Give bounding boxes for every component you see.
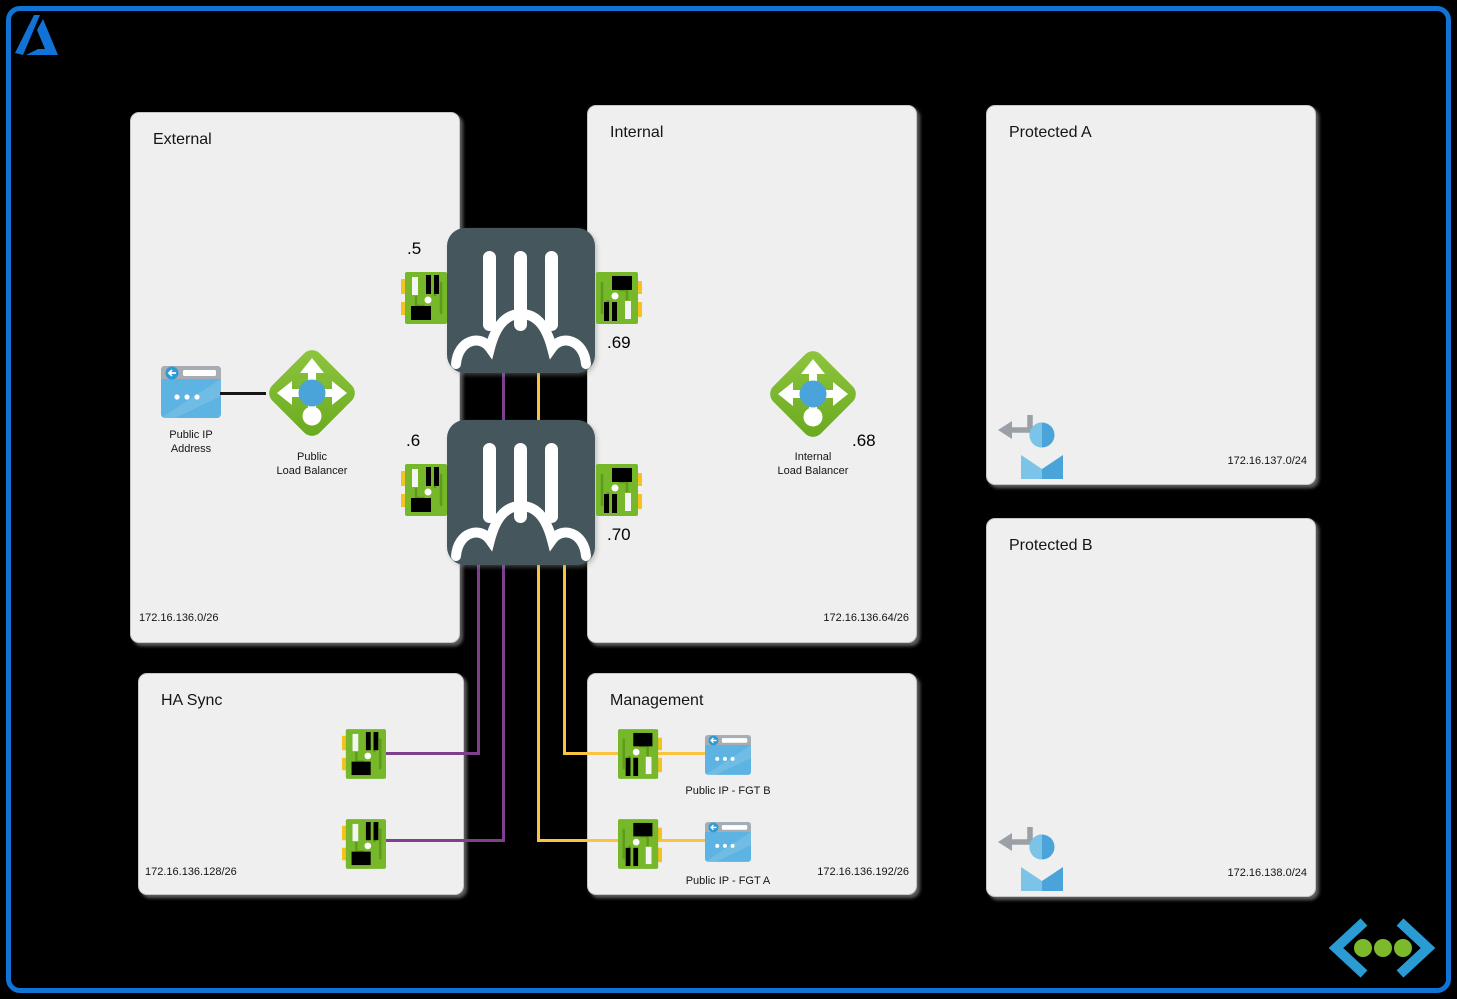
zone-protected-a-title: Protected A [1009, 124, 1092, 142]
zone-protected-b: Protected B 172.16.138.0/24 [986, 518, 1316, 897]
zone-protected-a-cidr: 172.16.137.0/24 [1227, 455, 1307, 467]
public-ip-caption-line1: Public IP [131, 428, 251, 442]
zone-internal-title: Internal [610, 124, 663, 142]
zone-internal-cidr: 172.16.136.64/26 [823, 612, 909, 624]
zone-internal: Internal 172.16.136.64/26 .68 Internal L… [587, 105, 917, 643]
fgt-a-external-port-label: .5 [407, 239, 421, 259]
fgt-b-internal-port-label: .70 [607, 525, 631, 545]
public-ip-address-icon [161, 366, 221, 418]
fgt-a-external-nic-icon [401, 270, 447, 326]
fortigate-b-firewall-icon [447, 420, 595, 565]
public-ip-fgt-a-caption: Public IP - FGT A [648, 874, 808, 888]
zone-management-cidr: 172.16.136.192/26 [817, 866, 909, 878]
zone-external-title: External [153, 131, 212, 149]
zone-external-cidr: 172.16.136.0/26 [139, 612, 219, 624]
fgt-b-external-nic-icon [401, 462, 447, 518]
ha-sync-nic-fgt-a-icon [342, 816, 386, 872]
mgmt-nic-fgt-b-icon [618, 726, 662, 782]
mgmt-line-fgt-b-vertical [563, 565, 566, 755]
fgt-a-internal-nic-icon [596, 270, 642, 326]
ha-sync-line-fgt-a-horizontal [386, 839, 505, 842]
subnet-user-icon [996, 823, 1064, 891]
azure-logo-icon [13, 14, 59, 58]
public-lb-caption-line1: Public [253, 450, 371, 464]
public-load-balancer-icon [263, 344, 361, 442]
code-chevrons-logo-icon [1326, 914, 1438, 982]
fgt-b-external-port-label: .6 [406, 431, 420, 451]
public-ip-fgt-a-icon [705, 822, 751, 862]
public-ip-fgt-b-caption: Public IP - FGT B [648, 784, 808, 798]
public-ip-fgt-b-icon [705, 735, 751, 775]
zone-protected-a: Protected A 172.16.137.0/24 [986, 105, 1316, 485]
zone-ha-sync-cidr: 172.16.136.128/26 [145, 866, 237, 878]
zone-ha-sync: HA Sync 172.16.136.128/26 [138, 673, 464, 895]
ha-sync-line-fgt-b-vertical [477, 565, 480, 755]
zone-protected-b-title: Protected B [1009, 537, 1093, 555]
pip-to-lb-connector [220, 392, 266, 395]
ha-sync-nic-fgt-b-icon [342, 726, 386, 782]
fgt-a-internal-port-label: .69 [607, 333, 631, 353]
zone-management-title: Management [610, 692, 703, 710]
public-ip-caption: Public IP Address [131, 428, 251, 456]
public-lb-caption-line2: Load Balancer [253, 464, 371, 478]
fgt-b-internal-nic-icon [596, 462, 642, 518]
zone-protected-b-cidr: 172.16.138.0/24 [1227, 867, 1307, 879]
public-lb-caption: Public Load Balancer [253, 450, 371, 478]
internal-lb-ip-label: .68 [852, 431, 876, 451]
mgmt-nic-fgt-a-icon [618, 816, 662, 872]
internal-load-balancer-icon [764, 345, 862, 443]
internal-lb-caption: Internal Load Balancer [754, 450, 872, 478]
zone-ha-sync-title: HA Sync [161, 692, 222, 710]
fortigate-a-firewall-icon [447, 228, 595, 373]
subnet-user-icon [996, 411, 1064, 479]
zone-external: External 172.16.136.0/26 Public IP Addre… [130, 112, 460, 643]
ha-sync-line-fgt-b-horizontal [386, 752, 480, 755]
internal-lb-caption-line2: Load Balancer [754, 464, 872, 478]
diagram-canvas: External 172.16.136.0/26 Public IP Addre… [0, 0, 1457, 999]
internal-lb-caption-line1: Internal [754, 450, 872, 464]
public-ip-caption-line2: Address [131, 442, 251, 456]
